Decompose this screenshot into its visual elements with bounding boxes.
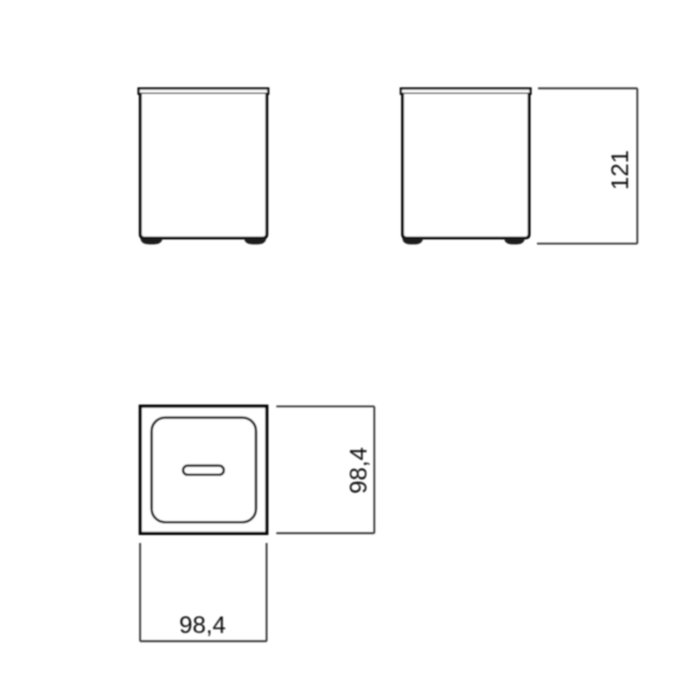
svg-text:98,4: 98,4: [179, 612, 226, 639]
svg-text:121: 121: [607, 150, 634, 190]
svg-text:98,4: 98,4: [346, 447, 373, 494]
